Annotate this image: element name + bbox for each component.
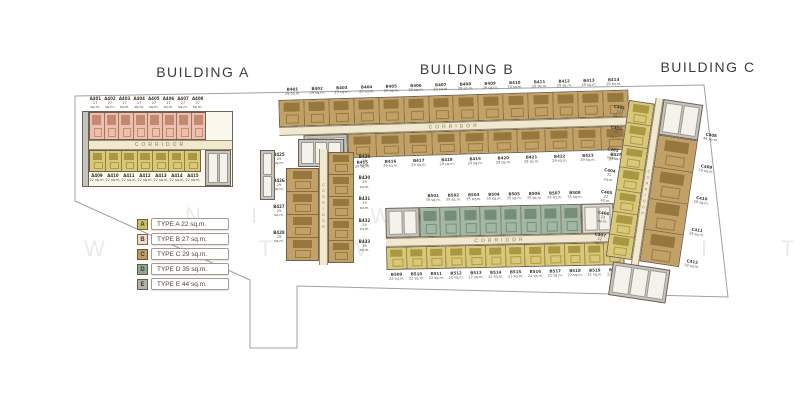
unit-cell xyxy=(329,153,353,175)
building-a-bottom-unit-labels: A40922 sq.m.A41022 sq.m.A41122 sq.m.A412… xyxy=(89,173,201,186)
unit-label: B41629 sq.m. xyxy=(376,158,405,172)
unit-cell xyxy=(106,151,122,171)
unit-type-legend: ATYPE A 22 sq.m.BTYPE B 27 sq.m.CTYPE C … xyxy=(137,218,229,293)
unit-label: B51822 sq.m. xyxy=(565,268,585,282)
unit-cell xyxy=(169,151,185,171)
unit-label: B51622 sq.m. xyxy=(525,269,545,283)
unit-cell xyxy=(517,129,546,152)
unit-label: C41229 sq.m. xyxy=(680,258,702,292)
unit-label: A40827 sq.m. xyxy=(190,96,205,111)
unit-label: B41029 sq.m. xyxy=(502,80,527,94)
unit-label: A41322 sq.m. xyxy=(153,173,169,186)
unit-cell xyxy=(379,97,405,123)
wing-right-unit-labels: B42929 sq.m.B43029 sq.m.B43129 sq.m.B432… xyxy=(357,154,372,260)
unit-label: B41729 sq.m. xyxy=(405,157,434,171)
unit-cell xyxy=(287,215,318,238)
unit-label: A41022 sq.m. xyxy=(105,173,121,186)
unit-label: A41122 sq.m. xyxy=(121,173,137,186)
unit-label: B42029 sq.m. xyxy=(489,155,518,169)
unit-label: B51322 sq.m. xyxy=(466,270,486,284)
unit-label: B41929 sq.m. xyxy=(461,156,490,170)
unit-cell xyxy=(287,238,318,260)
building-a-title: BUILDING A xyxy=(118,64,288,80)
building-a-type-a-units xyxy=(89,150,201,172)
unit-label: A41222 sq.m. xyxy=(137,173,153,186)
unit-label: B40729 sq.m. xyxy=(428,82,453,96)
stair-annex xyxy=(260,150,275,200)
building-c-type-e-unit xyxy=(658,99,703,141)
unit-label: B50735 sq.m. xyxy=(544,190,565,203)
building-a-corridor: CORRIDOR xyxy=(89,140,232,150)
unit-label: B41129 sq.m. xyxy=(527,79,552,93)
unit-cell xyxy=(506,245,526,266)
unit-cell xyxy=(446,246,466,267)
unit-cell xyxy=(545,244,565,265)
unit-label: B43129 sq.m. xyxy=(357,196,372,217)
legend-label: TYPE D 35 sq.m. xyxy=(151,263,229,275)
unit-cell xyxy=(529,93,555,119)
unit-cell xyxy=(481,207,502,235)
unit-cell xyxy=(407,247,427,268)
legend-type-icon: D xyxy=(137,264,148,275)
unit-label: B50922 sq.m. xyxy=(387,272,407,286)
unit-label: C40929 sq.m. xyxy=(694,163,716,197)
unit-label: A40427 sq.m. xyxy=(132,96,147,111)
unit-cell xyxy=(122,151,138,171)
unit-label: A40527 sq.m. xyxy=(147,96,162,111)
unit-label: A40227 sq.m. xyxy=(103,96,118,111)
unit-cell xyxy=(433,132,462,155)
unit-cell xyxy=(420,208,441,236)
unit-label: B43229 sq.m. xyxy=(357,218,372,239)
building-c-title: BUILDING C xyxy=(628,59,788,75)
unit-label: A40627 sq.m. xyxy=(161,96,176,111)
south-type-d-units xyxy=(419,204,582,237)
unit-cell xyxy=(565,244,585,265)
unit-cell xyxy=(329,241,353,262)
unit-label: B40829 sq.m. xyxy=(453,81,478,95)
unit-label: B50435 sq.m. xyxy=(484,191,505,204)
unit-label: B42229 sq.m. xyxy=(546,153,575,167)
legend-label: TYPE B 27 sq.m. xyxy=(151,233,229,245)
unit-cell xyxy=(387,248,407,269)
unit-cell xyxy=(573,127,602,150)
unit-cell xyxy=(185,151,200,171)
unit-cell xyxy=(329,99,355,125)
unit-cell xyxy=(192,113,206,139)
unit-cell xyxy=(404,97,430,123)
south-stair-core xyxy=(385,207,420,238)
unit-cell xyxy=(279,100,305,126)
unit-cell xyxy=(489,130,518,153)
unit-cell xyxy=(504,94,530,120)
building-b-title: BUILDING B xyxy=(382,61,552,77)
unit-cell xyxy=(607,234,634,259)
unit-cell xyxy=(553,92,579,118)
unit-cell xyxy=(578,91,604,117)
unit-cell xyxy=(134,113,149,139)
unit-label: A40127 sq.m. xyxy=(88,96,103,111)
unit-label: B41229 sq.m. xyxy=(552,78,577,92)
unit-label: B41829 sq.m. xyxy=(433,157,462,171)
unit-label: B40329 sq.m. xyxy=(329,85,354,99)
building-a-type-b-units xyxy=(89,112,206,140)
unit-label: A41522 sq.m. xyxy=(185,173,201,186)
south-type-a-units xyxy=(386,242,624,270)
unit-label: B51222 sq.m. xyxy=(446,270,466,284)
unit-cell xyxy=(304,99,330,125)
wing-left-units xyxy=(286,168,319,261)
unit-label: B42929 sq.m. xyxy=(357,154,372,175)
unit-label: B42729 sq.m. xyxy=(272,204,286,230)
unit-label: A40327 sq.m. xyxy=(117,96,132,111)
unit-label: B51022 sq.m. xyxy=(406,271,426,285)
unit-cell xyxy=(153,151,169,171)
unit-cell xyxy=(287,169,318,192)
unit-label: B50135 sq.m. xyxy=(423,193,444,206)
unit-cell xyxy=(541,205,562,233)
unit-label: B41429 sq.m. xyxy=(601,77,626,91)
legend-type-icon: C xyxy=(137,249,148,260)
unit-cell xyxy=(440,207,461,235)
unit-cell xyxy=(354,98,380,124)
unit-cell xyxy=(427,247,447,268)
unit-label: B50235 sq.m. xyxy=(443,192,464,205)
unit-label: C41129 sq.m. xyxy=(684,226,706,260)
lift-stair-core xyxy=(205,150,231,186)
legend-item: DTYPE D 35 sq.m. xyxy=(137,263,229,275)
unit-cell xyxy=(177,113,192,139)
unit-label: B40429 sq.m. xyxy=(354,84,379,98)
unit-cell xyxy=(521,206,542,234)
unit-label: B40929 sq.m. xyxy=(478,80,503,94)
legend-type-icon: E xyxy=(137,279,148,290)
unit-cell xyxy=(501,206,522,234)
unit-cell xyxy=(119,113,134,139)
unit-cell xyxy=(377,133,406,156)
unit-label: B42129 sq.m. xyxy=(517,154,546,168)
unit-cell xyxy=(466,246,486,267)
unit-cell xyxy=(90,151,106,171)
unit-label: B43329 sq.m. xyxy=(357,239,372,260)
unit-cell xyxy=(561,205,581,233)
unit-label: B42329 sq.m. xyxy=(574,152,603,166)
wing-right-units xyxy=(328,152,354,263)
unit-label: B51122 sq.m. xyxy=(426,271,446,285)
unit-cell xyxy=(329,197,353,219)
unit-label: B50635 sq.m. xyxy=(524,191,545,204)
legend-type-icon: B xyxy=(137,234,148,245)
unit-label: B40629 sq.m. xyxy=(404,83,429,97)
legend-item: BTYPE B 27 sq.m. xyxy=(137,233,229,245)
unit-cell xyxy=(148,113,163,139)
unit-cell xyxy=(90,113,105,139)
legend-type-icon: A xyxy=(137,219,148,230)
legend-label: TYPE C 29 sq.m. xyxy=(151,248,229,260)
wing-corridor: CORRIDOR xyxy=(319,149,328,265)
legend-label: TYPE E 44 sq.m. xyxy=(151,278,229,290)
site-floor-plan: N I T W W I T W I C H I T BUILDING A BUI… xyxy=(0,0,800,400)
unit-cell xyxy=(329,219,353,241)
unit-label: C41029 sq.m. xyxy=(689,195,711,229)
legend-item: ETYPE E 44 sq.m. xyxy=(137,278,229,290)
unit-cell xyxy=(105,113,120,139)
unit-cell xyxy=(138,151,154,171)
unit-cell xyxy=(461,131,490,154)
unit-label: B51422 sq.m. xyxy=(486,269,506,283)
unit-label: B43029 sq.m. xyxy=(357,175,372,196)
unit-cell xyxy=(163,113,178,139)
unit-label: A41422 sq.m. xyxy=(169,173,185,186)
legend-item: ATYPE A 22 sq.m. xyxy=(137,218,229,230)
unit-cell xyxy=(329,175,353,197)
unit-label: B51722 sq.m. xyxy=(545,268,565,282)
legend-item: CTYPE C 29 sq.m. xyxy=(137,248,229,260)
unit-label: B40529 sq.m. xyxy=(379,83,404,97)
unit-label: B41329 sq.m. xyxy=(576,77,601,91)
unit-cell xyxy=(405,132,434,155)
unit-cell xyxy=(479,94,505,120)
unit-cell xyxy=(641,230,683,266)
unit-label: B50835 sq.m. xyxy=(565,190,586,203)
unit-label: B50335 sq.m. xyxy=(463,192,484,205)
unit-label: B40129 sq.m. xyxy=(280,86,305,100)
unit-label: B42829 sq.m. xyxy=(272,230,286,256)
unit-label: A40727 sq.m. xyxy=(176,96,191,111)
south-bottom-unit-labels: B50922 sq.m.B51022 sq.m.B51122 sq.m.B512… xyxy=(387,267,625,286)
unit-cell xyxy=(461,207,482,235)
unit-cell xyxy=(486,245,506,266)
legend-label: TYPE A 22 sq.m. xyxy=(151,218,229,230)
unit-cell xyxy=(454,95,480,121)
unit-cell xyxy=(287,192,318,215)
unit-label: B40229 sq.m. xyxy=(305,85,330,99)
unit-cell xyxy=(545,128,574,151)
unit-cell xyxy=(429,96,455,122)
building-a-top-unit-labels: A40127 sq.m.A40227 sq.m.A40327 sq.m.A404… xyxy=(88,96,205,111)
unit-label: B51522 sq.m. xyxy=(506,269,526,283)
unit-label: C40844 sq.m. xyxy=(699,131,721,165)
unit-cell xyxy=(525,245,545,266)
building-a-outline: CORRIDOR A40922 sq.m.A41022 sq.m.A41122 … xyxy=(82,111,233,187)
unit-label: B50535 sq.m. xyxy=(504,191,525,204)
unit-label: A40922 sq.m. xyxy=(89,173,105,186)
